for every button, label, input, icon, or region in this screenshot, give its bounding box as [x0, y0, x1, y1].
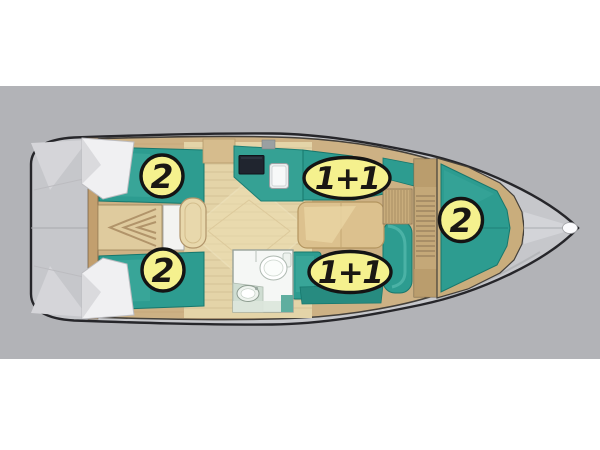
- bow-tip-fitting: [563, 223, 578, 234]
- chart-table: [383, 189, 412, 224]
- mast-table: [180, 198, 206, 248]
- top-white-band: [0, 0, 600, 86]
- toilet-seat: [264, 260, 283, 276]
- bottom-white-band: [0, 359, 600, 450]
- companionway-steps: [98, 205, 162, 250]
- badge-aft-cabin-starboard: 2: [142, 249, 184, 291]
- galley-vent: [262, 140, 275, 149]
- dinette-table: [298, 202, 384, 248]
- badge-aft-cabin-port-label: 2: [151, 157, 174, 196]
- badge-saloon-starboard: 1+1: [309, 252, 391, 293]
- cockpit-seat-port: [82, 138, 134, 199]
- boat-layout-diagram: 2 1+1 2 1+1 2: [0, 0, 600, 450]
- badge-saloon-starboard-label: 1+1: [318, 255, 383, 291]
- bulkhead-cap-bottom: [414, 269, 437, 297]
- head-teal-corner: [281, 295, 293, 312]
- cockpit-seat-starboard: [82, 258, 134, 319]
- forward-bulkhead-door: [414, 159, 437, 297]
- galley-cabinet: [203, 139, 235, 163]
- washbasin-bowl: [241, 289, 255, 299]
- bulkhead-cap-top: [414, 159, 437, 187]
- badge-aft-cabin-starboard-label: 2: [152, 251, 175, 290]
- head-compartment: [233, 250, 293, 312]
- badge-forward-cabin: 2: [440, 199, 483, 242]
- washbasin-faucet: [255, 287, 258, 290]
- galley-fridge-lid: [272, 166, 286, 186]
- boat-layout-canvas: 2 1+1 2 1+1 2: [0, 0, 600, 450]
- badge-aft-cabin-port: 2: [141, 155, 183, 197]
- badge-forward-cabin-label: 2: [450, 201, 473, 240]
- badge-saloon-port-label: 1+1: [315, 161, 380, 197]
- mast-table-top: [180, 198, 206, 248]
- badge-saloon-port: 1+1: [304, 158, 390, 199]
